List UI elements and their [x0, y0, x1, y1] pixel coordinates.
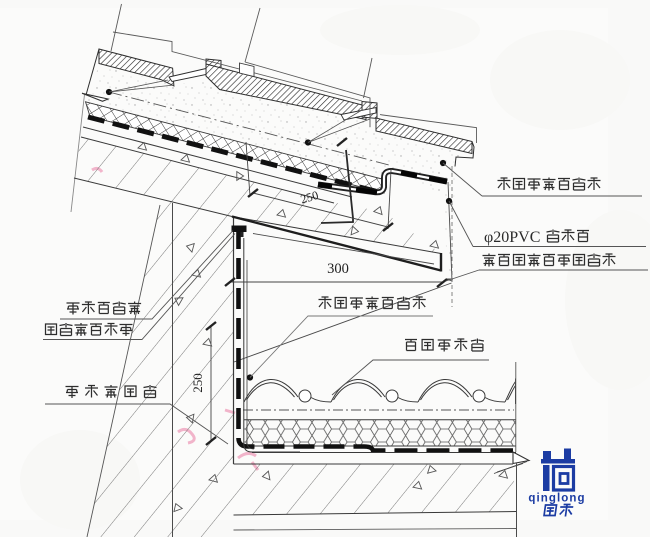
svg-text:250: 250	[190, 373, 205, 393]
svg-text:φ20PVC: φ20PVC	[484, 229, 540, 246]
svg-text:300: 300	[327, 261, 349, 277]
svg-text:qinglong: qinglong	[528, 493, 585, 505]
